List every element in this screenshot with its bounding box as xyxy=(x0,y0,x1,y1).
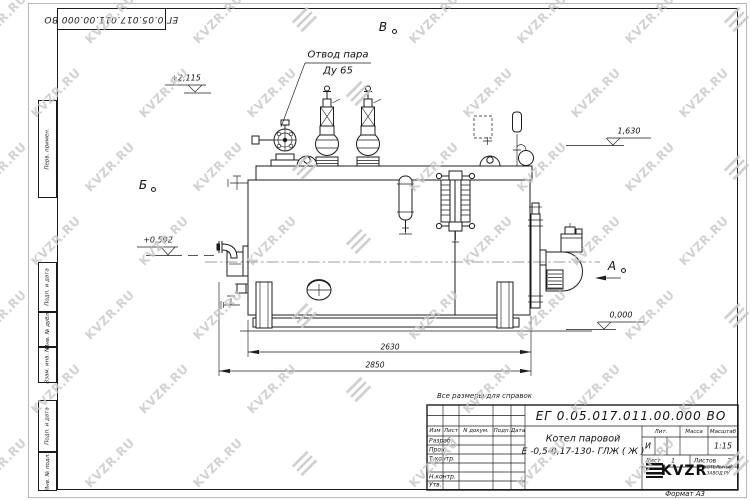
role-prov: Пров. xyxy=(429,446,446,453)
level-mark-base xyxy=(566,322,645,330)
kvzr-logo-sub2: ЗАВОД.РУ xyxy=(707,472,730,477)
view-marker-v: В xyxy=(379,20,387,34)
kvzr-logo-sub1: КОТЕЛЬНЫЙ xyxy=(703,466,732,471)
header-list: Лист xyxy=(444,428,458,434)
header-sign: Подп. xyxy=(494,428,511,434)
view-marker-b: Б xyxy=(139,178,147,192)
role-tkontr: Т.контр. xyxy=(429,455,455,462)
level-value-top: +2,115 xyxy=(171,74,201,83)
manhole xyxy=(307,280,331,300)
role-razrab: Разраб. xyxy=(429,437,453,444)
safety-valve-2 xyxy=(357,86,382,166)
dimension-overall-length: 2850 xyxy=(365,361,384,370)
scale-value: 1:15 xyxy=(714,442,732,451)
lifting-lug-left xyxy=(297,156,317,166)
header-mass: Масса xyxy=(685,429,703,435)
boiler-drawing xyxy=(0,0,750,500)
level-mark-top xyxy=(165,85,211,93)
header-lit: Лит. xyxy=(655,429,668,435)
steam-outlet-callout-line2: Ду 65 xyxy=(323,66,353,77)
support-leg-left xyxy=(256,282,272,328)
format-label: Формат А3 xyxy=(665,490,705,498)
header-doc: N докум. xyxy=(463,428,489,434)
burner-unit xyxy=(217,241,249,309)
body-top-left-valve xyxy=(228,176,248,190)
header-date: Дата xyxy=(511,428,525,434)
view-arrow-a xyxy=(595,276,621,281)
steam-outlet-valve xyxy=(252,120,299,166)
product-name-line1: Котел паровой xyxy=(546,434,621,445)
view-marker-v-circle-icon xyxy=(392,29,397,34)
header-scale: Масштаб xyxy=(710,429,736,435)
role-utv: Утв. xyxy=(429,482,442,489)
level-value-upper-right: 1,630 xyxy=(618,127,641,136)
level-value-base: 0,000 xyxy=(610,311,633,320)
sheets-total-value: 2 xyxy=(727,458,731,465)
boiler-body xyxy=(248,180,530,315)
skid-base xyxy=(253,318,519,327)
level-mark-mid-left xyxy=(137,247,214,256)
lifting-lug-right xyxy=(480,156,500,166)
plate-fitting-dashed xyxy=(474,116,492,145)
dimension-body-length: 2630 xyxy=(380,343,399,352)
steam-outlet-callout-line1: Отвод пара xyxy=(308,50,369,61)
drawing-sheet: Перв. примен. Подп. и дата Инв. № дубл. … xyxy=(0,0,750,500)
role-nkontr: Н.контр. xyxy=(429,473,456,480)
header-izm: Изм xyxy=(429,428,440,434)
lit-value: И xyxy=(645,442,651,451)
safety-valve-1 xyxy=(316,86,341,166)
title-doc-number: ЕГ 0.05.017.011.00.000 ВО xyxy=(536,409,727,423)
kvzr-logo-text: KVZR xyxy=(661,463,708,479)
level-value-mid-left: +0,592 xyxy=(143,236,173,245)
reference-note: Все размеры для справок xyxy=(437,392,532,400)
view-marker-a-circle-icon xyxy=(621,268,626,273)
view-marker-a: А xyxy=(608,259,616,273)
level-mark-upper-right xyxy=(566,138,651,146)
support-leg-right xyxy=(497,282,513,328)
product-name-line2: Е -0,5-0,17-130- ГЛЖ ( Ж ) xyxy=(522,447,645,457)
top-plate xyxy=(256,166,532,180)
blower-fan xyxy=(528,203,583,308)
pressure-gauge xyxy=(513,112,534,166)
view-marker-b-circle-icon xyxy=(151,187,156,192)
